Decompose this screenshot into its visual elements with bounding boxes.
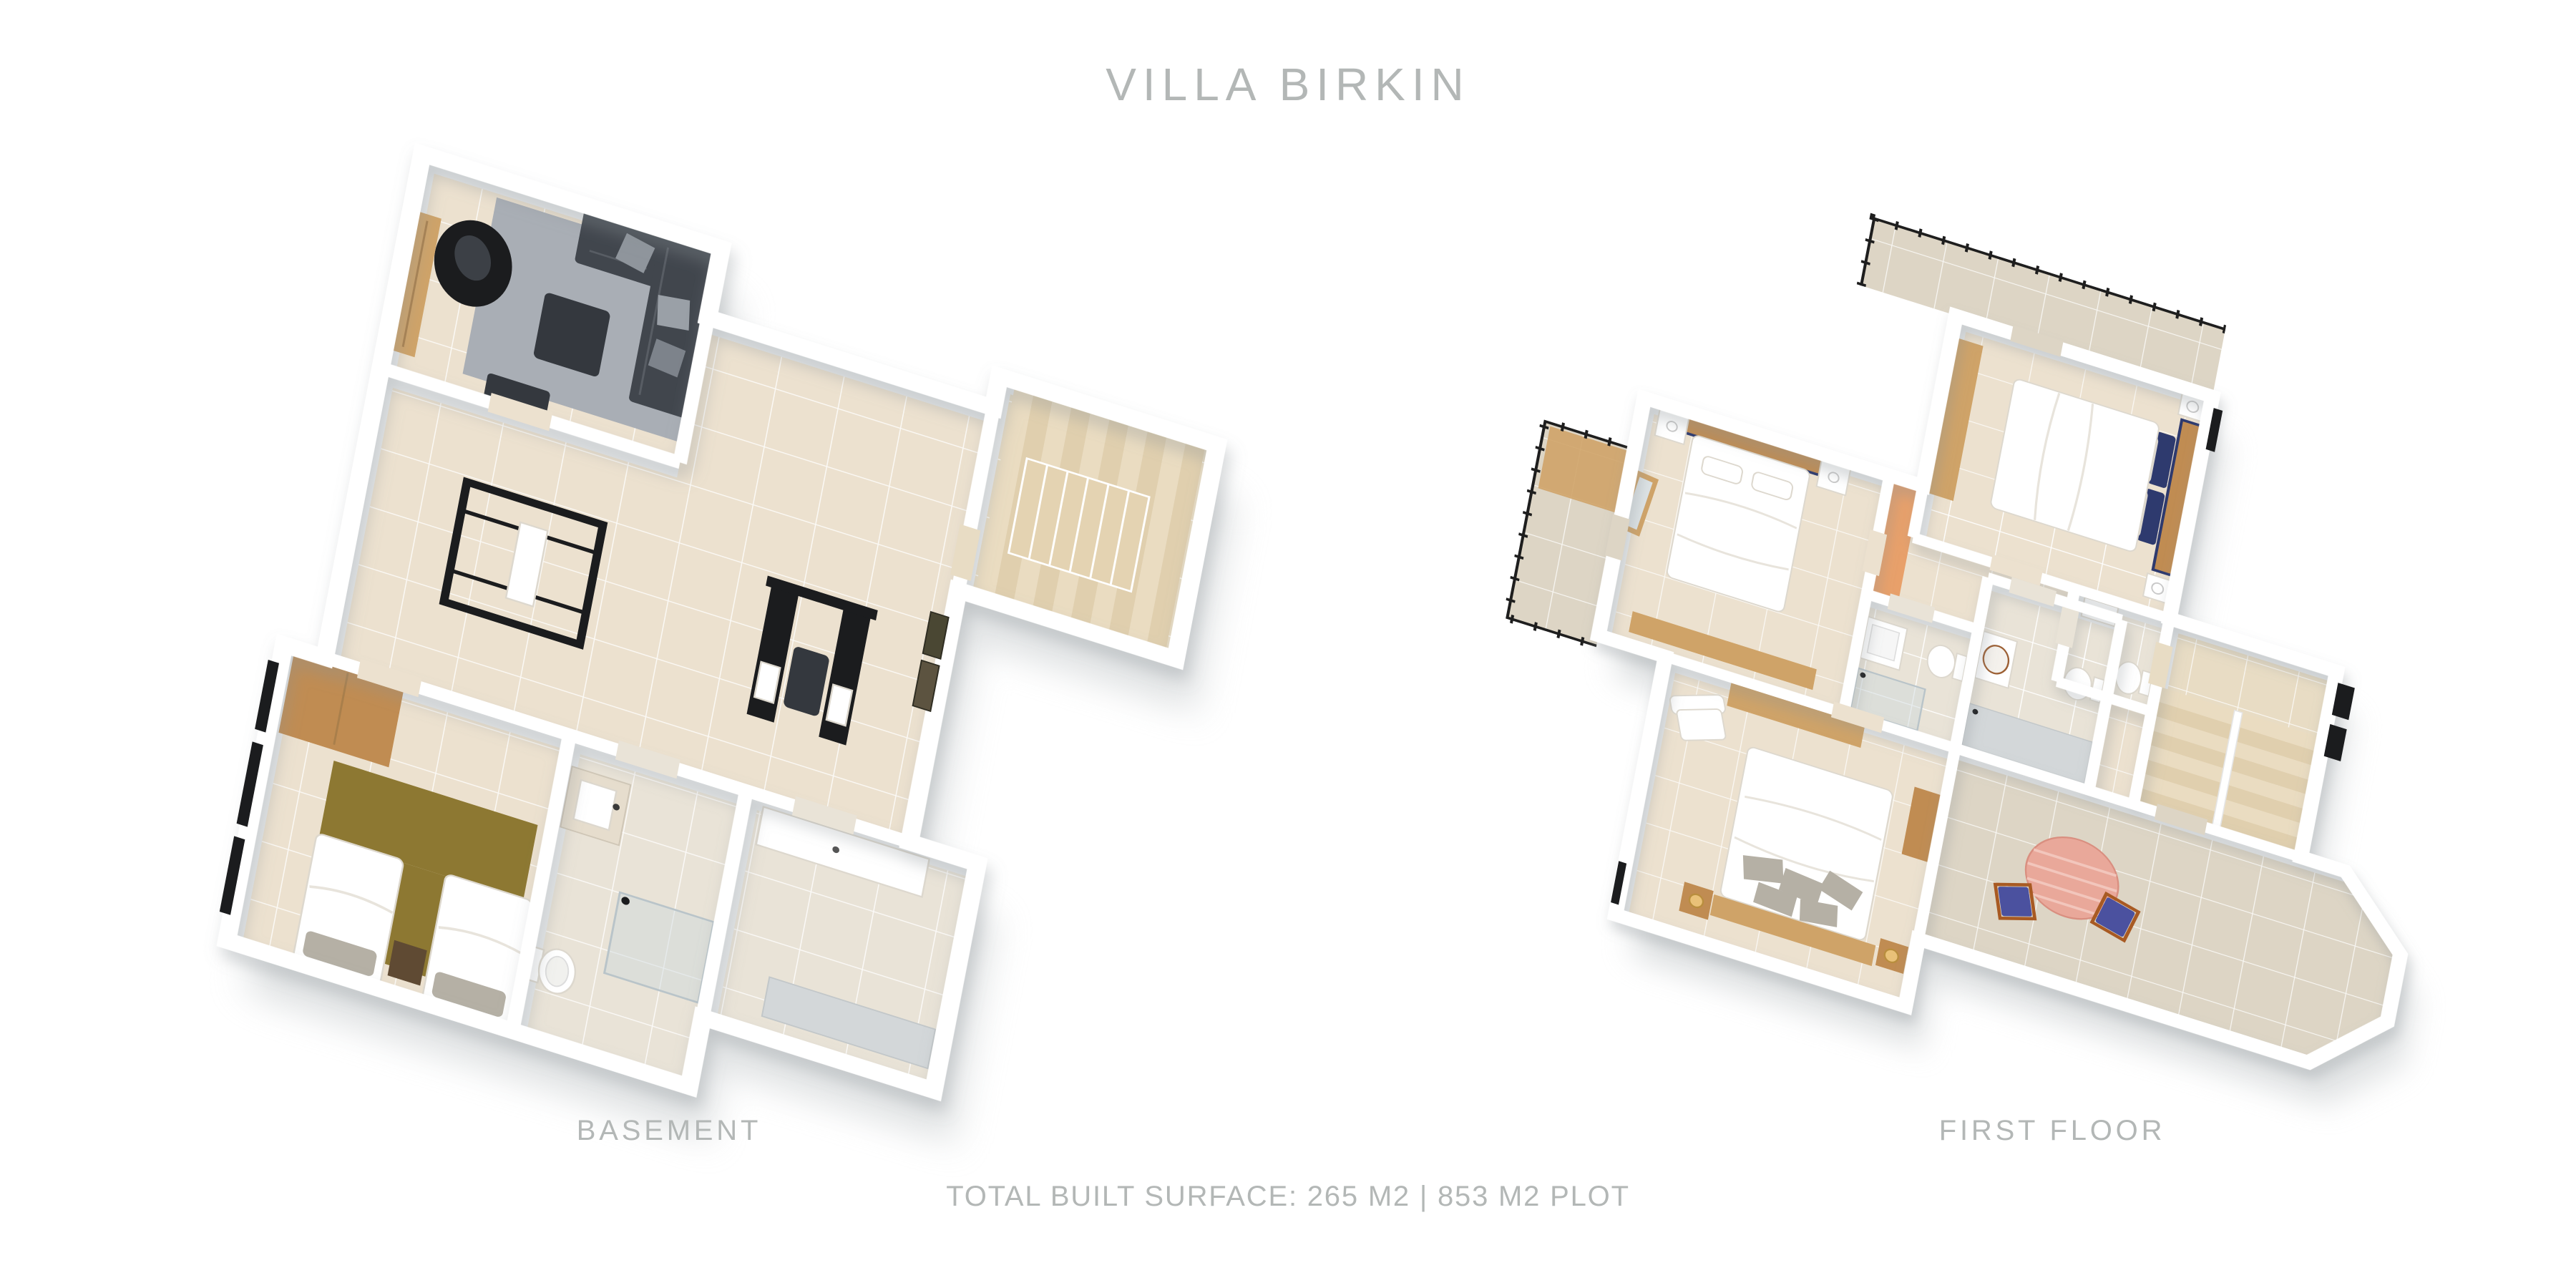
- basement-label: BASEMENT: [577, 1116, 761, 1145]
- door-opening: [960, 527, 970, 577]
- first-floor-plan: [1453, 132, 2527, 1194]
- door-opening: [2064, 609, 2071, 645]
- door-opening: [2157, 645, 2165, 686]
- armchair-seat: [1676, 709, 1726, 741]
- chair-seat: [1998, 887, 2032, 917]
- page: VILLA BIRKIN: [0, 0, 2576, 1288]
- first-floor-label: FIRST FLOOR: [1939, 1116, 2166, 1145]
- floorplan-canvas: [0, 0, 2576, 1288]
- sofa-pillow: [657, 295, 690, 331]
- door-opening: [1614, 517, 1621, 558]
- pillow: [1743, 855, 1783, 884]
- door-opening: [1870, 532, 1878, 574]
- basement-plan: [206, 137, 1252, 1260]
- surface-summary: TOTAL BUILT SURFACE: 265 M2 | 853 M2 PLO…: [0, 1182, 2576, 1211]
